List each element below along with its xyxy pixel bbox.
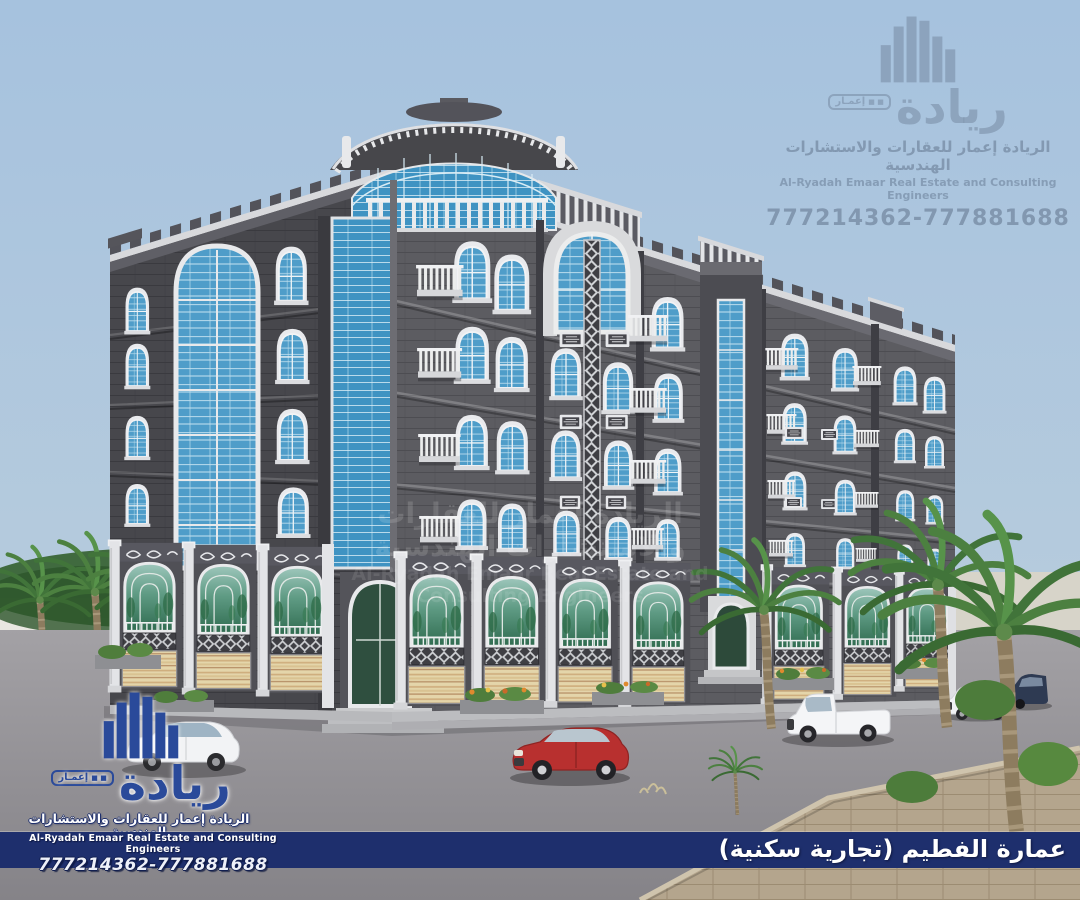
architectural-rendering-canvas: الريادة إعمار للعقارات والاستشارات الهند… [0,0,1080,900]
ground-arcade-right [393,551,956,709]
stair-tower [700,262,762,612]
caption-band: Al-Ryadah Emaar Real Estate and Consulti… [0,832,1080,868]
company-logo-badge: ■ ■إعمـار ريادة [46,688,236,806]
ornament-pier [584,240,600,576]
building-title: عمارة الفطيم (تجارية سكنية) [719,832,1066,868]
building-towers-logo-icon [98,688,184,760]
watermark-company-block: ■ ■إعمـار ريادة الريادة إعمار للعقارات و… [760,12,1076,231]
company-name-arabic: الريادة إعمار للعقارات والاستشارات الهند… [760,138,1076,174]
company-name-english: Al-Ryadah Emaar Real Estate and Consulti… [760,176,1076,202]
logo-tag-text: إعمـار [58,772,88,783]
band-company-name-english: Al-Ryadah Emaar Real Estate and Consulti… [28,833,278,855]
logo-emaar-tag: ■ ■إعمـار [828,94,891,110]
left-glass-strip [176,246,258,568]
logo-calligraphy: ريادة [119,760,231,806]
company-phone-numbers: 777214362-777881688 [760,206,1076,231]
ground-arcade-left [108,540,334,709]
logo-calligraphy: ريادة [896,84,1008,130]
badge-band-text: Al-Ryadah Emaar Real Estate and Consulti… [28,833,278,875]
building-towers-logo-icon [875,12,961,84]
logo-tag-squares-icon: ■ ■ [868,98,884,106]
logo-tag-text: إعمـار [835,96,865,107]
logo-emaar-tag: ■ ■إعمـار [51,770,114,786]
band-phone-numbers: 777214362-777881688 [28,855,278,875]
company-logo-watermark: ■ ■إعمـار ريادة [760,12,1076,130]
logo-tag-squares-icon: ■ ■ [91,774,107,782]
